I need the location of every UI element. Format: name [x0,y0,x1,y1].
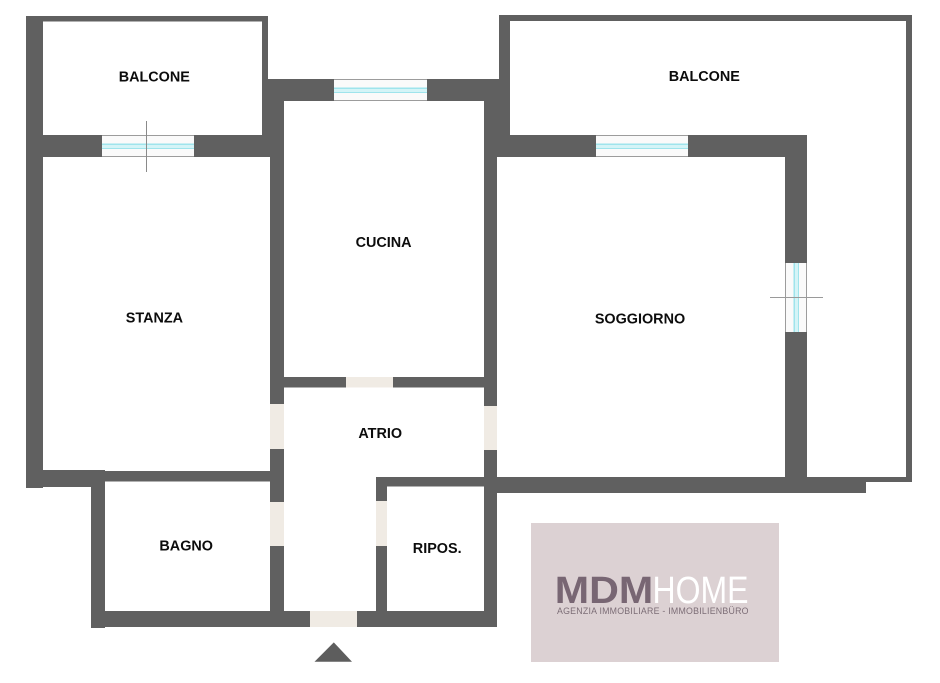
svg-text:AGENZIA IMMOBILIARE - IMMOBILI: AGENZIA IMMOBILIARE - IMMOBILIENBÜRO [557,606,749,616]
svg-text:STANZA: STANZA [126,311,184,327]
svg-text:CUCINA: CUCINA [356,235,413,251]
svg-text:BALCONE: BALCONE [119,70,191,86]
svg-text:SOGGIORNO: SOGGIORNO [595,311,685,327]
svg-text:BALCONE: BALCONE [669,69,741,85]
svg-text:RIPOS.: RIPOS. [413,541,462,557]
svg-text:ATRIO: ATRIO [358,426,402,442]
svg-text:BAGNO: BAGNO [159,539,213,555]
